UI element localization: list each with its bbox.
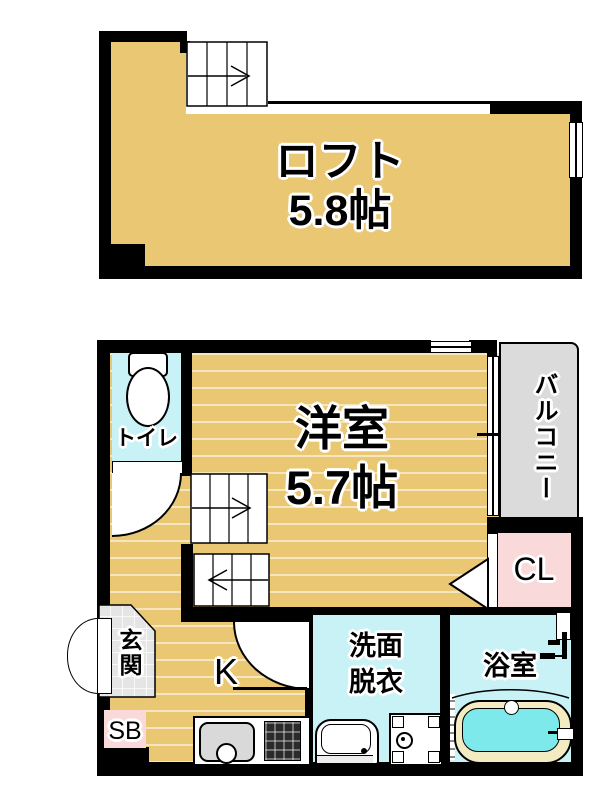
entrance-label: 玄関 (110, 616, 142, 690)
bathtub-icon (454, 700, 572, 764)
loft-name: ロフト (165, 138, 515, 187)
shower-faucet-icon (536, 630, 572, 674)
western-room-area: 5.7帖 (167, 459, 517, 518)
bath-deck-line (451, 684, 570, 700)
balcony-label: バルコニー (519, 366, 557, 508)
wall (97, 340, 431, 353)
loft-stairs-icon (186, 41, 268, 107)
stove-icon (264, 721, 301, 761)
entrance-door (97, 618, 112, 694)
loft-floor-upper-lobe (110, 41, 186, 114)
wall (97, 340, 110, 618)
closet-label: CL (497, 551, 571, 588)
entrance-door-arc (67, 618, 99, 694)
western-room-name: 洋室 (167, 400, 517, 459)
loft-area: 5.8帖 (165, 187, 515, 236)
shoe-box-label: SB (104, 717, 146, 746)
stairs-down-icon (193, 553, 270, 607)
toilet-bowl-icon (126, 367, 170, 427)
closet-door-arrow (446, 556, 490, 612)
sink-faucet-icon (216, 743, 237, 764)
loft-name-label: ロフト 5.8帖 (165, 138, 515, 237)
kitchen-label: K (196, 651, 256, 692)
washing-machine-icon (389, 713, 443, 766)
wall (181, 544, 193, 622)
wall (440, 615, 450, 762)
washbasin-icon (315, 719, 379, 765)
wall (99, 31, 187, 42)
western-room-label: 洋室 5.7帖 (167, 400, 517, 518)
loft-window (569, 122, 583, 178)
wall-corner-notch (99, 244, 145, 268)
washroom-line2: 脱衣 (324, 664, 428, 700)
washroom-label: 洗面 脱衣 (324, 628, 428, 701)
floor-plan: ロフト 5.8帖 トイレ バルコニー (0, 0, 609, 812)
wall (99, 266, 582, 279)
room-top-window (430, 341, 472, 353)
wall (487, 517, 583, 533)
washroom-line1: 洗面 (324, 628, 428, 664)
void-edge-line (268, 101, 492, 104)
wall (490, 101, 582, 114)
wall (99, 31, 111, 279)
wall-corner-block (97, 747, 149, 764)
